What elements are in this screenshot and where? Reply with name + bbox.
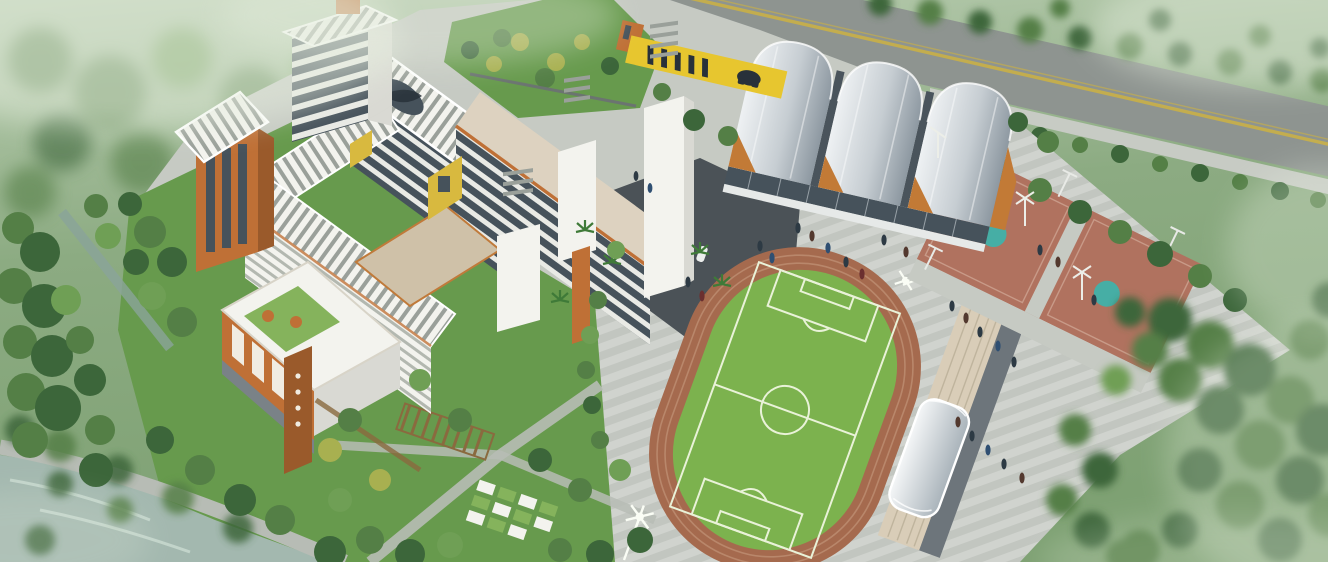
campus-scene	[0, 0, 1328, 562]
campus-rendering	[0, 0, 1328, 562]
